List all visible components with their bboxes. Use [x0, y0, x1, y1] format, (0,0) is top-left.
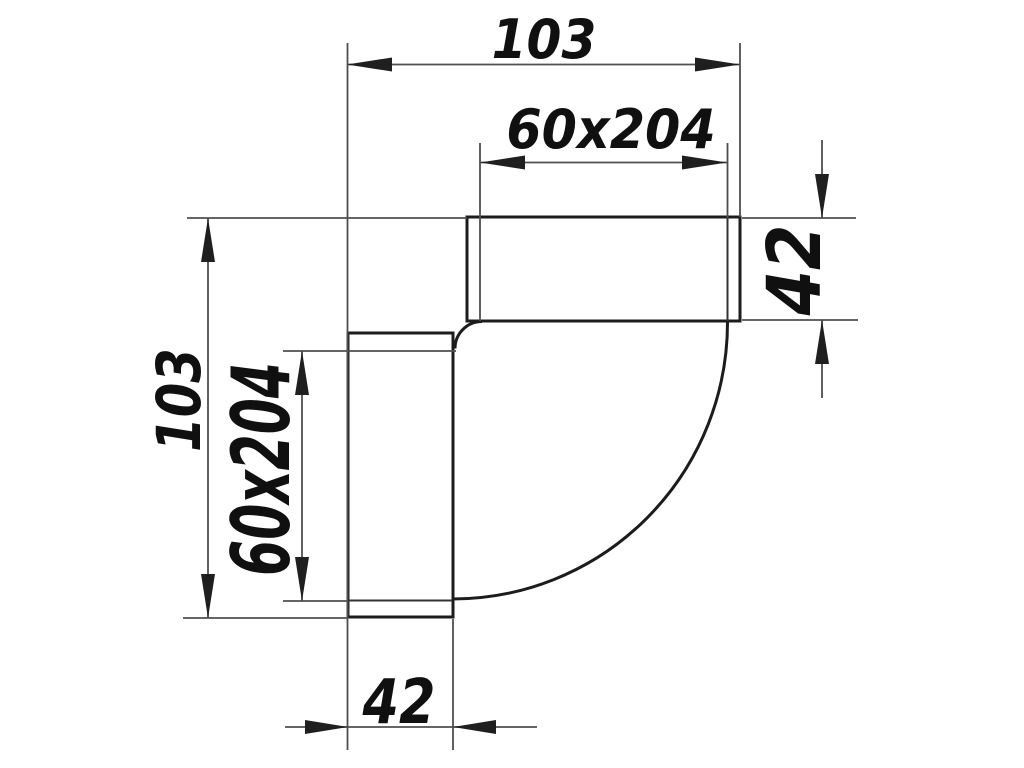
label-bottom-socket: 42: [362, 667, 436, 738]
horizontal-socket-rect: [467, 217, 740, 321]
arrow-left-height-top: [201, 218, 215, 262]
arrow-bottom-socket-right: [453, 720, 496, 734]
vertical-socket-rect: [348, 333, 453, 617]
arrow-right-socket-bottom: [815, 320, 829, 364]
elbow-dimension-drawing: 103 60x204 42 103 60x204 42: [0, 0, 1024, 768]
arrow-right-socket-top: [815, 174, 829, 218]
label-left-height: 103: [145, 348, 215, 452]
arrow-top-width-left: [347, 58, 392, 72]
outer-radius-arc: [453, 323, 728, 600]
dimension-labels: 103 60x204 42 103 60x204 42: [145, 9, 838, 738]
arrow-left-height-bottom: [201, 574, 215, 618]
arrow-bottom-socket-left: [305, 720, 348, 734]
technical-drawing-canvas: 103 60x204 42 103 60x204 42: [0, 0, 1024, 768]
elbow-body-outline: [348, 217, 740, 617]
label-top-duct: 60x204: [506, 99, 715, 162]
label-top-width: 103: [492, 9, 597, 71]
label-right-socket: 42: [752, 225, 838, 317]
inner-radius-arc: [455, 322, 482, 349]
label-left-duct: 60x204: [214, 362, 308, 576]
arrow-top-width-right: [695, 58, 740, 72]
